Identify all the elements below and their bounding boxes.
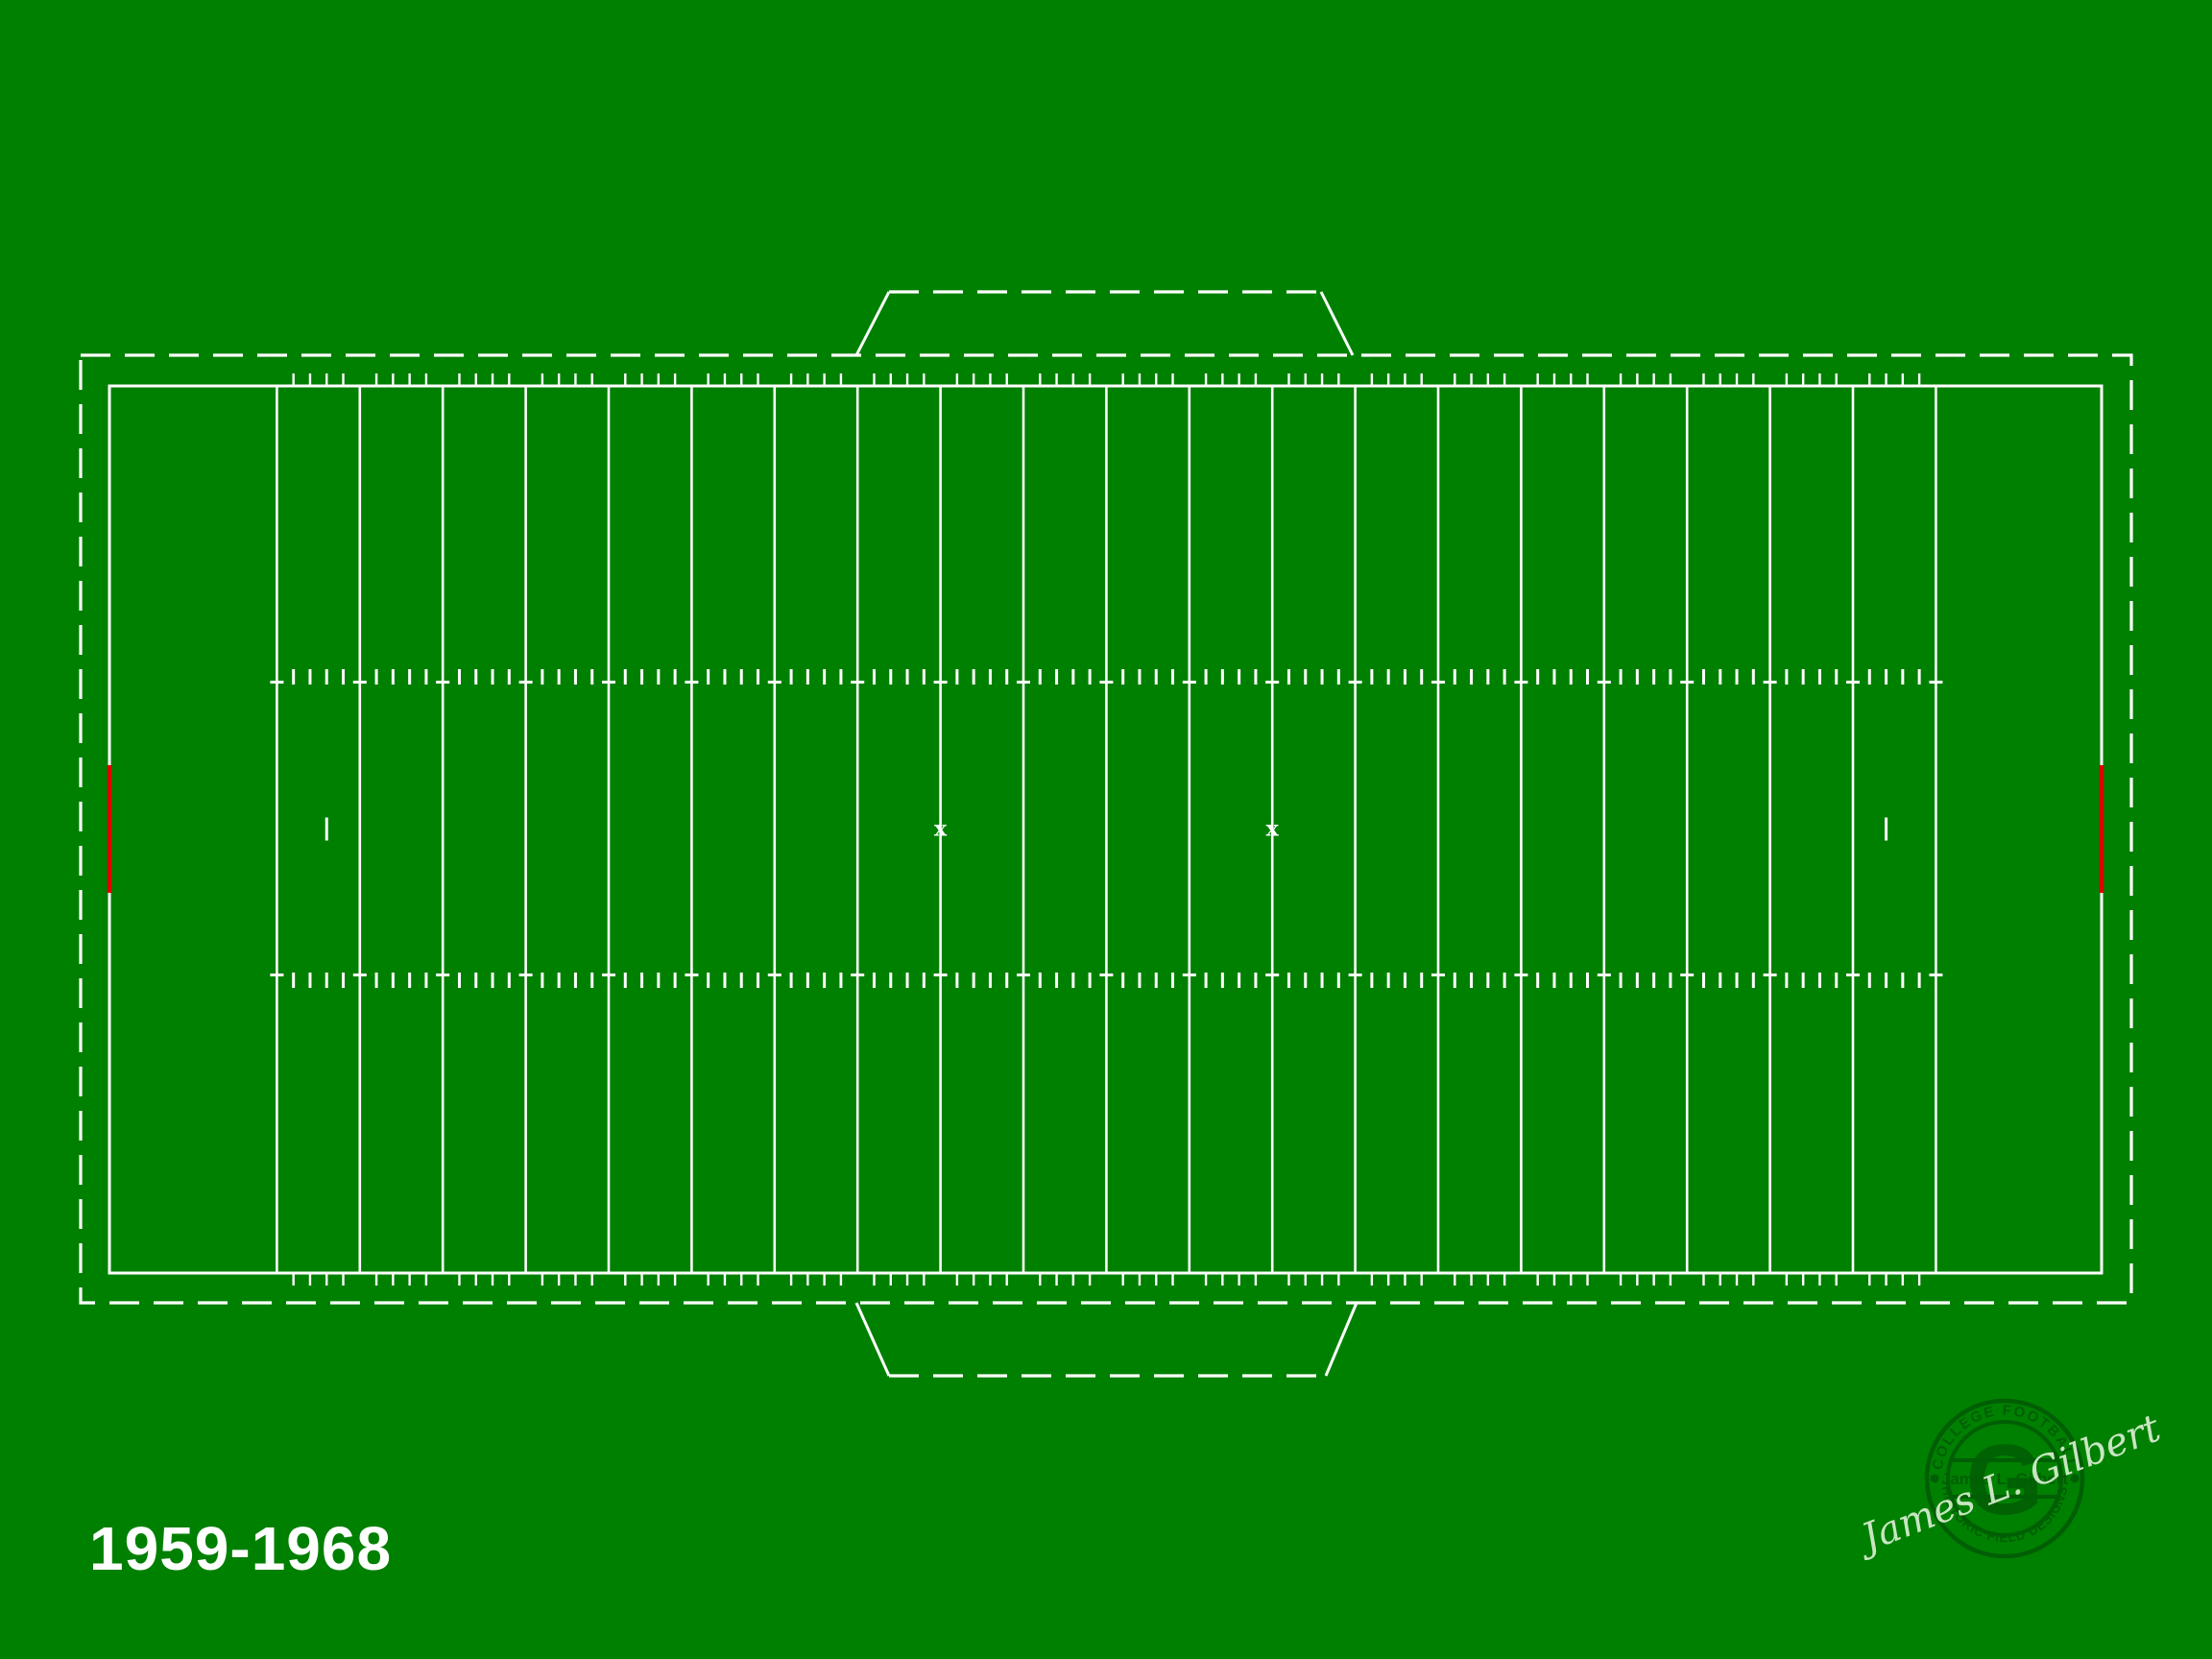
football-field-diagram: xx G COLLEGE FOOTBALL HISTORIC FIELD DES… bbox=[0, 0, 2212, 1659]
goal-post-left bbox=[108, 765, 112, 893]
stamp-left-bullet bbox=[1931, 1475, 1939, 1483]
yard-lines-group bbox=[276, 386, 1935, 1273]
kickoff-mark-left: x bbox=[934, 817, 948, 842]
team-area-top-right-slant bbox=[1321, 292, 1353, 355]
field-diagram-canvas: xx G COLLEGE FOOTBALL HISTORIC FIELD DES… bbox=[0, 0, 2212, 1659]
team-area-top-left-slant bbox=[856, 292, 889, 355]
team-area-bottom-left-slant bbox=[856, 1303, 889, 1376]
era-label: 1959-1968 bbox=[89, 1513, 392, 1584]
try-mark-right bbox=[1885, 818, 1887, 841]
team-area-bottom-right-slant bbox=[1326, 1303, 1357, 1376]
kickoff-mark-right: x bbox=[1266, 817, 1280, 842]
try-mark-left bbox=[325, 818, 328, 841]
goal-post-right bbox=[2100, 765, 2104, 893]
